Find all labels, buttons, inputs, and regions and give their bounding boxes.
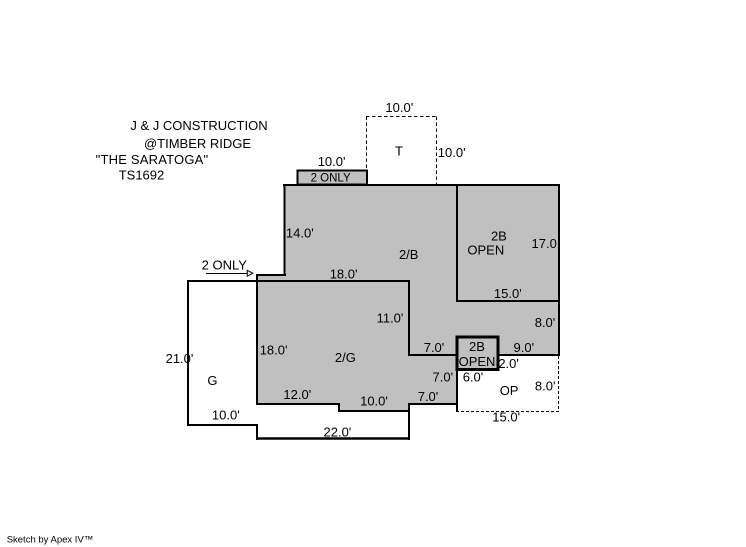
svg-text:@TIMBER RIDGE: @TIMBER RIDGE (144, 136, 251, 151)
svg-text:10.0': 10.0' (438, 145, 466, 160)
svg-text:7.0': 7.0' (418, 389, 439, 404)
svg-text:14.0': 14.0' (286, 226, 314, 241)
svg-text:OP: OP (500, 383, 519, 398)
svg-text:8.0': 8.0' (535, 379, 556, 394)
svg-text:10.0': 10.0' (212, 408, 240, 423)
svg-text:"THE SARATOGA": "THE SARATOGA" (96, 152, 209, 167)
svg-text:2B: 2B (491, 228, 507, 243)
svg-text:10.0': 10.0' (360, 394, 388, 409)
svg-text:17.0: 17.0 (532, 236, 557, 251)
svg-text:2 ONLY: 2 ONLY (311, 173, 351, 185)
svg-text:2/B: 2/B (399, 247, 419, 262)
svg-text:2B: 2B (469, 339, 485, 354)
svg-text:15.0': 15.0' (494, 286, 522, 301)
svg-text:7.0': 7.0' (433, 370, 454, 385)
svg-text:OPEN: OPEN (459, 354, 496, 369)
svg-text:8.0': 8.0' (535, 315, 556, 330)
svg-text:22.0': 22.0' (324, 425, 352, 440)
svg-text:11.0': 11.0' (377, 310, 404, 325)
svg-text:2.0': 2.0' (498, 356, 519, 371)
svg-text:18.0': 18.0' (260, 343, 288, 358)
svg-text:7.0': 7.0' (424, 340, 445, 355)
svg-text:9.0': 9.0' (514, 340, 535, 355)
svg-text:2/G: 2/G (335, 350, 356, 365)
svg-text:15.0': 15.0' (492, 410, 520, 425)
svg-text:10.0': 10.0' (385, 100, 413, 115)
svg-text:T: T (395, 143, 403, 158)
svg-text:OPEN: OPEN (467, 242, 504, 257)
svg-text:21.0': 21.0' (166, 351, 194, 366)
svg-text:10.0': 10.0' (318, 154, 346, 169)
svg-text:Sketch by Apex IV™: Sketch by Apex IV™ (7, 535, 94, 546)
svg-text:6.0': 6.0' (463, 370, 484, 385)
svg-text:12.0': 12.0' (283, 387, 311, 402)
svg-text:2 ONLY: 2 ONLY (202, 258, 248, 273)
svg-text:J & J CONSTRUCTION: J & J CONSTRUCTION (130, 118, 267, 133)
svg-text:TS1692: TS1692 (119, 168, 165, 183)
svg-text:18.0': 18.0' (330, 267, 358, 282)
svg-text:G: G (207, 373, 217, 388)
